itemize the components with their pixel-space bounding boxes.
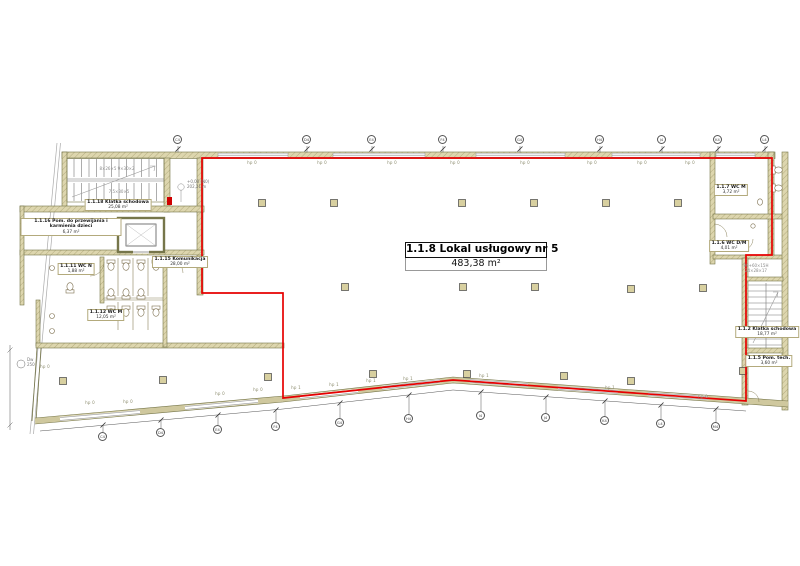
- parapet-label: hp 1: [291, 385, 301, 390]
- grid-bubble: H4: [404, 414, 413, 423]
- grid-bubble: D4: [302, 135, 311, 144]
- parapet-label: hp 0: [215, 391, 225, 396]
- unit-area: 483,38 m²: [405, 258, 547, 271]
- room-label-wc11: 1.1.11 WC N 1,88 m²: [58, 263, 95, 275]
- room-label-wc6: 1.1.6 WC D/M 4,01 m²: [709, 240, 749, 252]
- parapet-label: hp 0: [253, 387, 263, 392]
- room-label-wc12: 1.1.12 WC M 12,05 m²: [87, 309, 124, 321]
- room-name: 1.1.16 Pom. do przewijania i karmienia d…: [23, 219, 119, 230]
- parapet-label: hp 0: [40, 364, 50, 369]
- parapet-label: hp 0: [247, 160, 257, 165]
- room-area: 25,08 m²: [87, 205, 149, 210]
- grid-bubble: E4: [213, 425, 222, 434]
- grid-bubble: C4: [173, 135, 182, 144]
- grid-bubble: J4: [541, 413, 550, 422]
- room-area: 4,01 m²: [712, 246, 747, 251]
- hydrant-marker: [167, 197, 172, 205]
- parapet-label: hp 1: [366, 378, 376, 383]
- red-unit-boundary: [167, 158, 772, 401]
- room-label-pom5: 1.1.5 Pom. tech. 3,60 m²: [745, 355, 792, 367]
- parapet-label: hp 0: [85, 400, 95, 405]
- grid-bubble: F4: [271, 422, 280, 431]
- grid-bubble: G4: [335, 418, 344, 427]
- unit-title: 1.1.8 Lokal usługowy nr 5: [405, 242, 547, 258]
- stair-note: 8×26×5 9×30×2: [99, 166, 134, 171]
- grid-bubble: J4: [657, 135, 666, 144]
- grid-bubble: C4: [98, 432, 107, 441]
- parapet-label: hp 0: [123, 399, 133, 404]
- room-area: 1,88 m²: [60, 269, 92, 274]
- staircase-left: [67, 158, 164, 202]
- unit-label: 1.1.8 Lokal usługowy nr 5 483,38 m²: [405, 242, 547, 271]
- parapet-label: hp 1: [605, 385, 615, 390]
- parapet-label: hp 0: [698, 394, 708, 399]
- room-area: 3,60 m²: [748, 361, 790, 366]
- parapet-label: hp 1: [329, 382, 339, 387]
- parapet-label: hp 0: [637, 160, 647, 165]
- parapet-label: hp 1: [479, 373, 489, 378]
- grid-bubble: G4: [515, 135, 524, 144]
- room-area: 3,72 m²: [716, 190, 745, 195]
- parapet-label: hp 0: [317, 160, 327, 165]
- grid-bubble: L4: [656, 419, 665, 428]
- floor-plan: 1.1.8 Lokal usługowy nr 5 483,38 m² 1.1.…: [0, 0, 800, 566]
- room-label-wc7: 1.1.7 WC M 3,72 m²: [714, 184, 748, 196]
- stair-note: 24×28×17: [745, 268, 767, 273]
- room-area: 28,00 m²: [155, 262, 206, 267]
- grid-bubble: F4: [438, 135, 447, 144]
- parapet-label: hp 1: [403, 376, 413, 381]
- room-label-klatka2: 1.1.2 Klatka schodowa 18,77 m²: [735, 326, 799, 338]
- room-label-klatka18: 1.1.18 Klatka schodowa 25,08 m²: [85, 199, 152, 211]
- elevation-value: 202,21 m: [187, 184, 206, 189]
- grid-bubble: L4: [760, 135, 769, 144]
- site-boundary-line: [30, 143, 61, 434]
- grid-bubble: E4: [367, 135, 376, 144]
- grid-bubble: D4: [156, 428, 165, 437]
- grid-bubble: H4: [595, 135, 604, 144]
- walls: [20, 152, 788, 410]
- room-area: 6,37 m²: [23, 230, 119, 235]
- parapet-label: hp 0: [387, 160, 397, 165]
- door-marker-value: 250: [27, 362, 35, 367]
- parapet-label: hp 0: [685, 160, 695, 165]
- parapet-label: hp 0: [450, 160, 460, 165]
- room-label-pom16: 1.1.16 Pom. do przewijania i karmienia d…: [21, 218, 122, 236]
- room-area: 12,05 m²: [90, 315, 122, 320]
- grid-bubble: K4: [600, 416, 609, 425]
- grid-bubble: K4: [713, 135, 722, 144]
- room-label-kom15: 1.1.15 Komunikacja 28,00 m²: [152, 256, 208, 268]
- parapet-label: hp 0: [520, 160, 530, 165]
- plan-drawing: [0, 0, 800, 566]
- grid-bubble: M4: [711, 422, 720, 431]
- room-area: 18,77 m²: [738, 332, 797, 337]
- elevator: [118, 218, 164, 252]
- stair-note: 7,5×30×5: [109, 189, 130, 194]
- parapet-label: hp 0: [587, 160, 597, 165]
- grid-bubble: I4: [476, 411, 485, 420]
